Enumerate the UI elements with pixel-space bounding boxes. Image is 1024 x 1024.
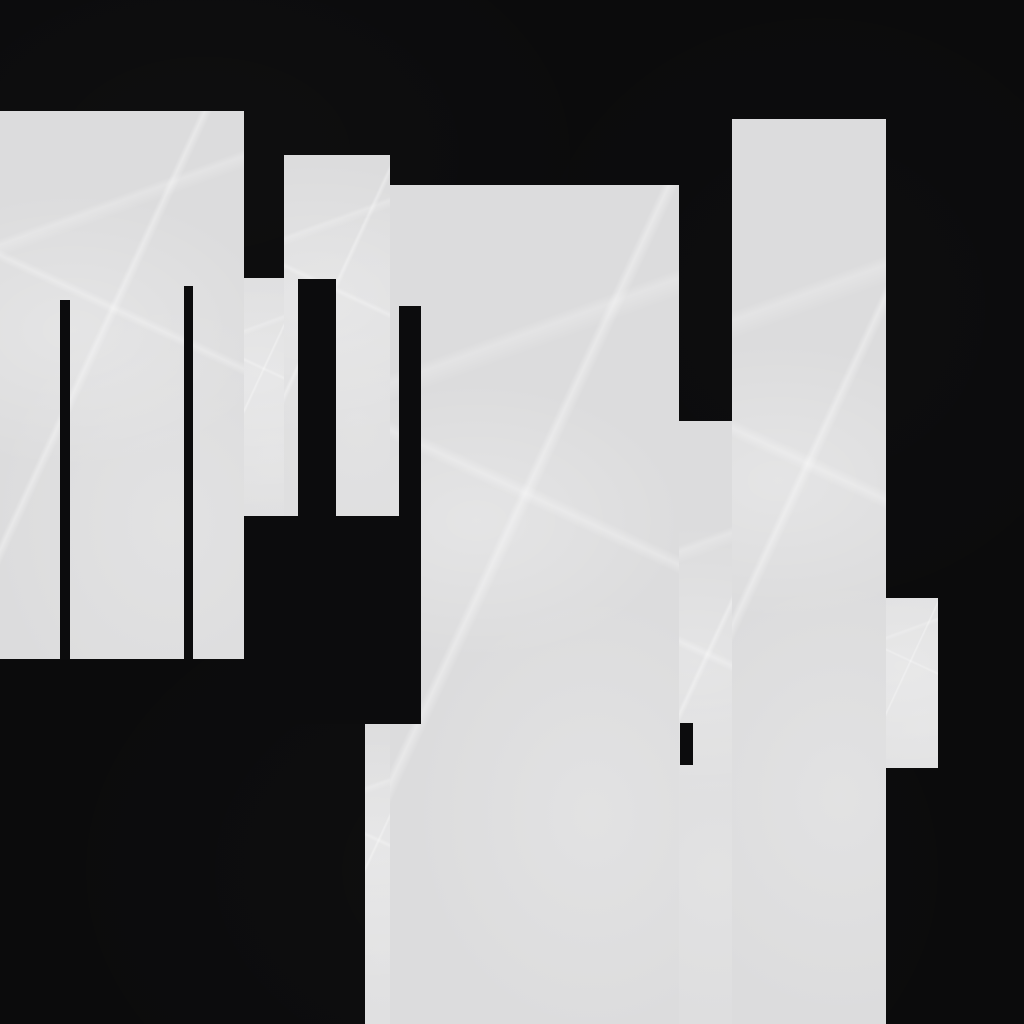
center-slab xyxy=(390,185,679,1024)
lower-band xyxy=(244,516,421,724)
wide-vertical-bar xyxy=(298,279,336,516)
right-bump xyxy=(886,598,938,768)
bottom-left-extension xyxy=(365,724,390,1024)
notch-connector xyxy=(244,278,284,516)
left-thin-bar-1 xyxy=(60,300,70,659)
left-block xyxy=(0,111,244,659)
small-notch-bar xyxy=(680,723,693,765)
abstract-composition xyxy=(0,0,1024,1024)
right-column xyxy=(732,119,886,1024)
left-thin-bar-2 xyxy=(184,286,193,659)
